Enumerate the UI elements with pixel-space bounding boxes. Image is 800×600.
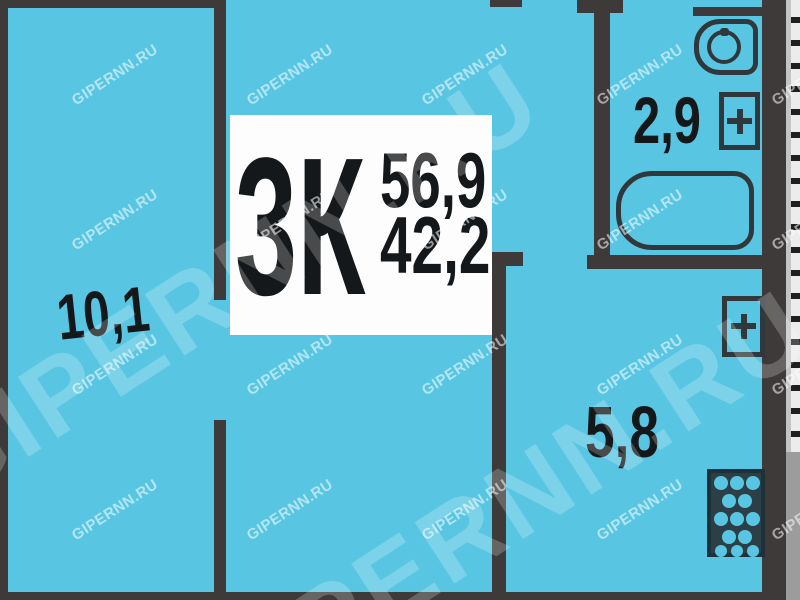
wall-kitchen-door-stub	[506, 252, 523, 266]
wall-left-room-lower	[214, 420, 226, 600]
wall-outer-left	[0, 0, 8, 600]
stove-icon	[707, 469, 765, 557]
watermark-text: GIPERNN.RU	[69, 186, 161, 254]
watermark-text: GIPERNN.RU	[69, 476, 161, 544]
toilet-flush-icon	[720, 28, 729, 36]
watermark-text: GIPERNN.RU	[244, 331, 336, 399]
wall-top-window-pier	[490, 0, 522, 7]
bathroom-area-label: 2,9	[633, 82, 701, 158]
wall-bathroom-left	[594, 8, 610, 258]
floor-plan: 10,1 2,9 5,8 3К 56,9 42,2 GIPERNN.RU GIP…	[0, 0, 800, 600]
washbasin-plus-icon	[737, 109, 743, 134]
watermark-text: GIPERNN.RU	[69, 41, 161, 109]
watermark-text: GIPERNN.RU	[244, 41, 336, 109]
wall-bathroom-bottom	[587, 255, 763, 269]
wall-bathroom-top	[693, 7, 763, 16]
watermark-text: GIPERNN.RU	[244, 476, 336, 544]
wall-outer-top-left	[0, 0, 226, 8]
